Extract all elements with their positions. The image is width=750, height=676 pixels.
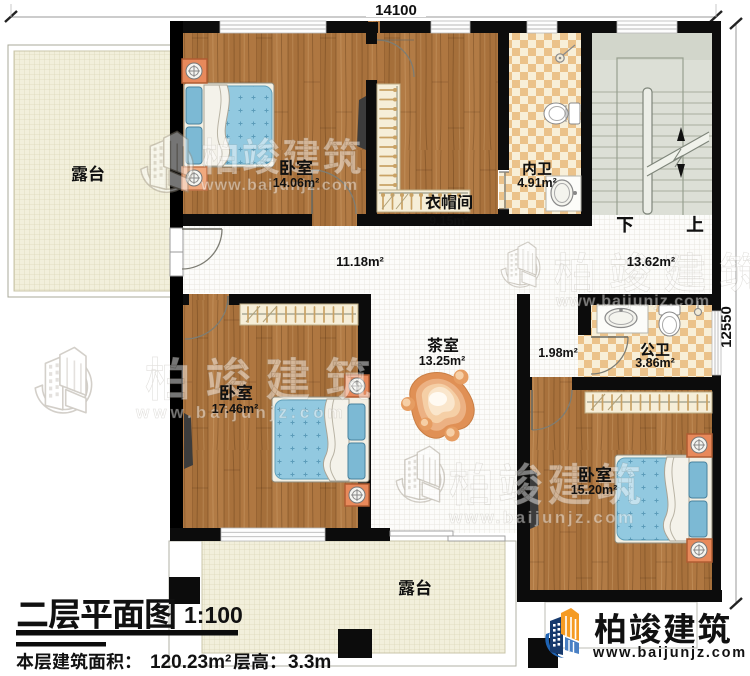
svg-text:www.baijunjz.com: www.baijunjz.com (555, 293, 710, 310)
svg-text:www.baijunjz.com: www.baijunjz.com (592, 645, 747, 661)
svg-text:www.baijunjz.com: www.baijunjz.com (448, 508, 636, 527)
svg-text:14100: 14100 (375, 2, 417, 19)
svg-text:13.25m²: 13.25m² (419, 354, 466, 368)
svg-text:1.98m²: 1.98m² (538, 346, 578, 360)
svg-text:17.46m²: 17.46m² (212, 402, 259, 416)
svg-text:13.62m²: 13.62m² (627, 254, 676, 269)
svg-text:11.18m²: 11.18m² (336, 254, 384, 269)
svg-text:120.23m²: 120.23m² (150, 652, 231, 673)
svg-text:9.15m²: 9.15m² (429, 214, 469, 228)
svg-text:4.91m²: 4.91m² (517, 176, 557, 190)
svg-text:1:100: 1:100 (184, 602, 243, 628)
svg-text:14.06m²: 14.06m² (273, 176, 320, 190)
svg-text:3.86m²: 3.86m² (635, 356, 675, 370)
svg-text:3.3m: 3.3m (288, 652, 331, 673)
svg-text:15.20m²: 15.20m² (571, 483, 618, 497)
